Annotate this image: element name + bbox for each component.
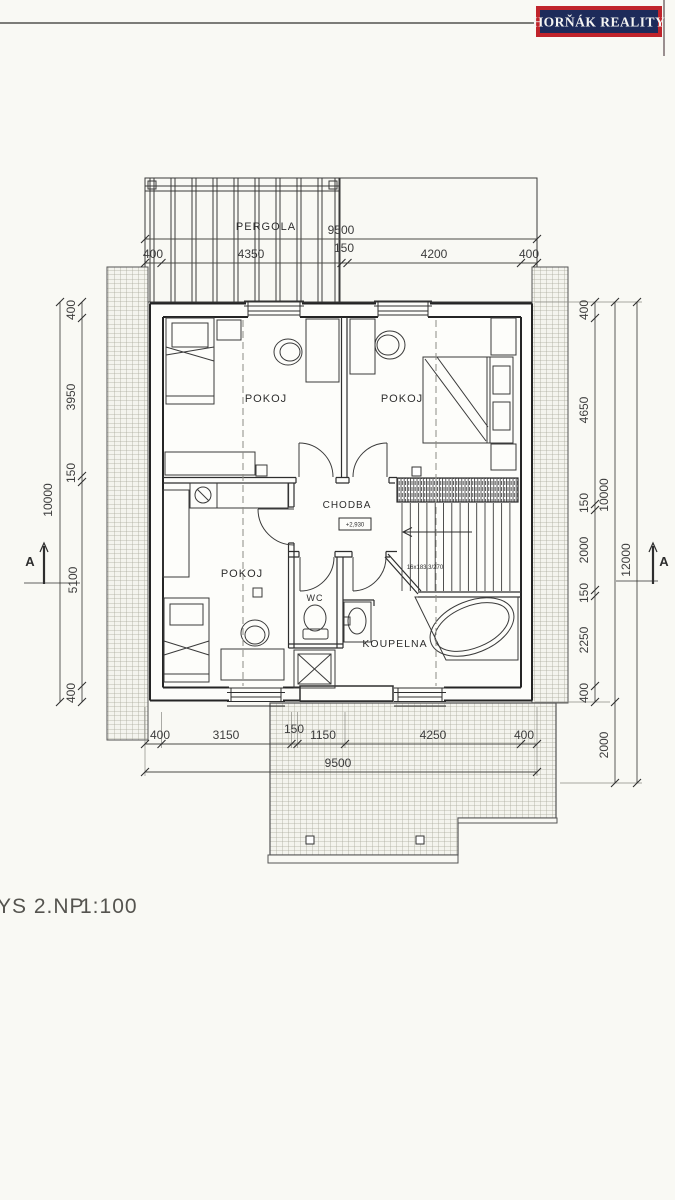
room-label-koupelna: KOUPELNA bbox=[362, 638, 427, 650]
dim-bottom-total: 9500 bbox=[325, 756, 352, 770]
dim-right-6: 400 bbox=[577, 683, 591, 703]
roof-band-right bbox=[532, 267, 568, 703]
terrace-post bbox=[416, 836, 424, 844]
plan-title: YS 2.NP bbox=[0, 895, 85, 918]
room-label-pokoj-top-left: POKOJ bbox=[245, 393, 287, 405]
dim-left-total: 10000 bbox=[41, 483, 55, 517]
dim-left-0: 400 bbox=[64, 300, 78, 320]
terrace-step bbox=[268, 855, 458, 863]
dim-left-1: 3950 bbox=[64, 383, 78, 410]
room-label-chodba: CHODBA bbox=[323, 500, 372, 511]
section-letter-left: A bbox=[25, 554, 35, 569]
dim-left-2: 150 bbox=[64, 463, 78, 483]
dim-left-3: 5100 bbox=[66, 566, 80, 593]
dim-right-4: 150 bbox=[577, 583, 591, 603]
dim-top-3: 4200 bbox=[421, 247, 448, 261]
roof-band-left bbox=[107, 267, 148, 740]
post-symbol bbox=[412, 467, 421, 476]
dim-bottom-2: 150 bbox=[284, 722, 304, 736]
terrace-edge bbox=[458, 818, 557, 823]
dim-bottom-4: 4250 bbox=[420, 728, 447, 742]
section-letter-right: A bbox=[659, 554, 669, 569]
dim-left-4: 400 bbox=[64, 683, 78, 703]
dim-top-total: 9500 bbox=[328, 223, 355, 237]
room-label-pokoj-top-right: POKOJ bbox=[381, 393, 423, 405]
dim-right-below: 2000 bbox=[597, 731, 611, 758]
room-label-pergola: PERGOLA bbox=[236, 221, 296, 233]
terrace-post bbox=[306, 836, 314, 844]
dim-top-0: 400 bbox=[143, 247, 163, 261]
dim-right-1: 4650 bbox=[577, 396, 591, 423]
dim-right-5: 2250 bbox=[577, 626, 591, 653]
dim-right-overall: 12000 bbox=[619, 543, 633, 577]
room-label-wc: WC bbox=[307, 593, 324, 603]
dim-right-total: 10000 bbox=[597, 478, 611, 512]
level-value: +2,930 bbox=[346, 523, 365, 529]
floor-plan-drawing: 9500 400 4350 150 4200 400 9500 400 3150… bbox=[0, 0, 675, 1200]
logo-text: HORŇÁK REALITY bbox=[533, 15, 666, 30]
dim-bottom-1: 3150 bbox=[213, 728, 240, 742]
agency-logo: HORŇÁK REALITY bbox=[533, 6, 666, 37]
room-label-pokoj-bottom-left: POKOJ bbox=[221, 568, 263, 580]
stair-balustrade bbox=[397, 478, 518, 502]
dim-top-4: 400 bbox=[519, 247, 539, 261]
terrace bbox=[268, 703, 557, 863]
title-block: YS 2.NP 1:100 bbox=[0, 895, 138, 918]
dim-right-3: 2000 bbox=[577, 536, 591, 563]
dim-bottom-3: 1150 bbox=[310, 728, 336, 742]
dim-right-2: 150 bbox=[577, 493, 591, 513]
dim-top-2: 150 bbox=[334, 241, 354, 255]
dim-top-1: 4350 bbox=[238, 247, 265, 261]
dim-bottom-0: 400 bbox=[150, 728, 170, 742]
plan-scale: 1:100 bbox=[80, 895, 138, 918]
dim-right-0: 400 bbox=[577, 300, 591, 320]
dim-bottom-5: 400 bbox=[514, 728, 534, 742]
stair-note: 16x183,3/270 bbox=[407, 565, 444, 571]
pergola-post bbox=[329, 181, 337, 189]
scanned-floor-plan-page: 9500 400 4350 150 4200 400 9500 400 3150… bbox=[0, 0, 675, 1200]
pergola-structure bbox=[145, 178, 537, 302]
pergola-post bbox=[148, 181, 156, 189]
pergola-beams bbox=[150, 178, 340, 302]
